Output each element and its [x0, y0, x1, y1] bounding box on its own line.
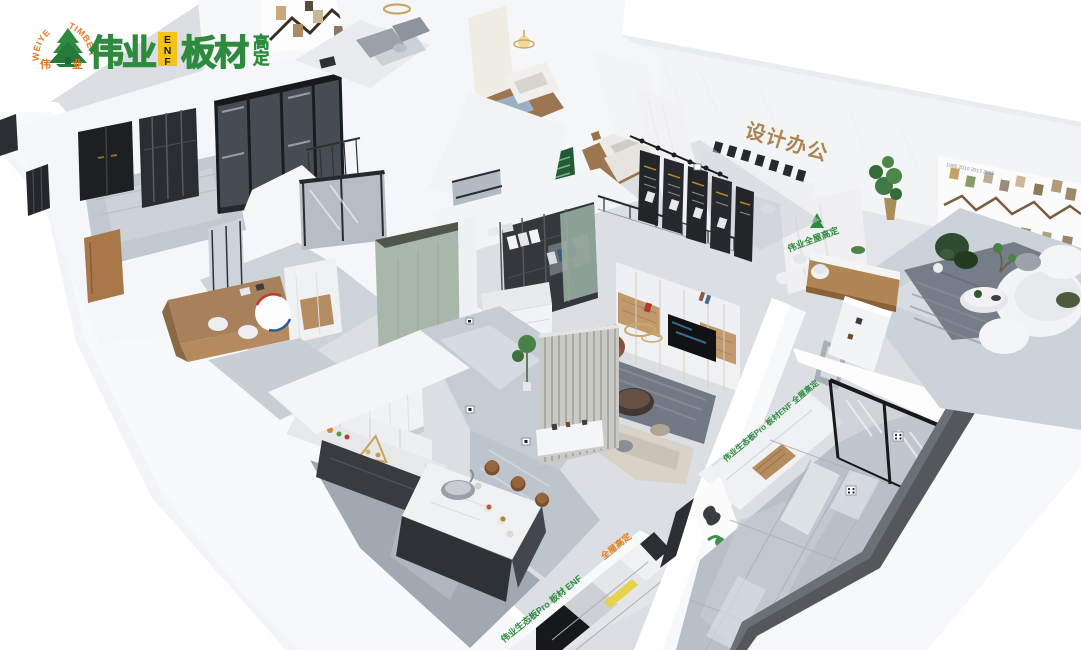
svg-text:F: F: [164, 56, 171, 68]
svg-text:定: 定: [253, 48, 270, 68]
svg-text:伟业: 伟业: [89, 34, 156, 73]
svg-text:伟: 伟: [40, 57, 51, 71]
svg-text:业: 业: [72, 57, 83, 71]
svg-text:板材: 板材: [181, 34, 249, 73]
svg-text:高: 高: [253, 32, 270, 52]
